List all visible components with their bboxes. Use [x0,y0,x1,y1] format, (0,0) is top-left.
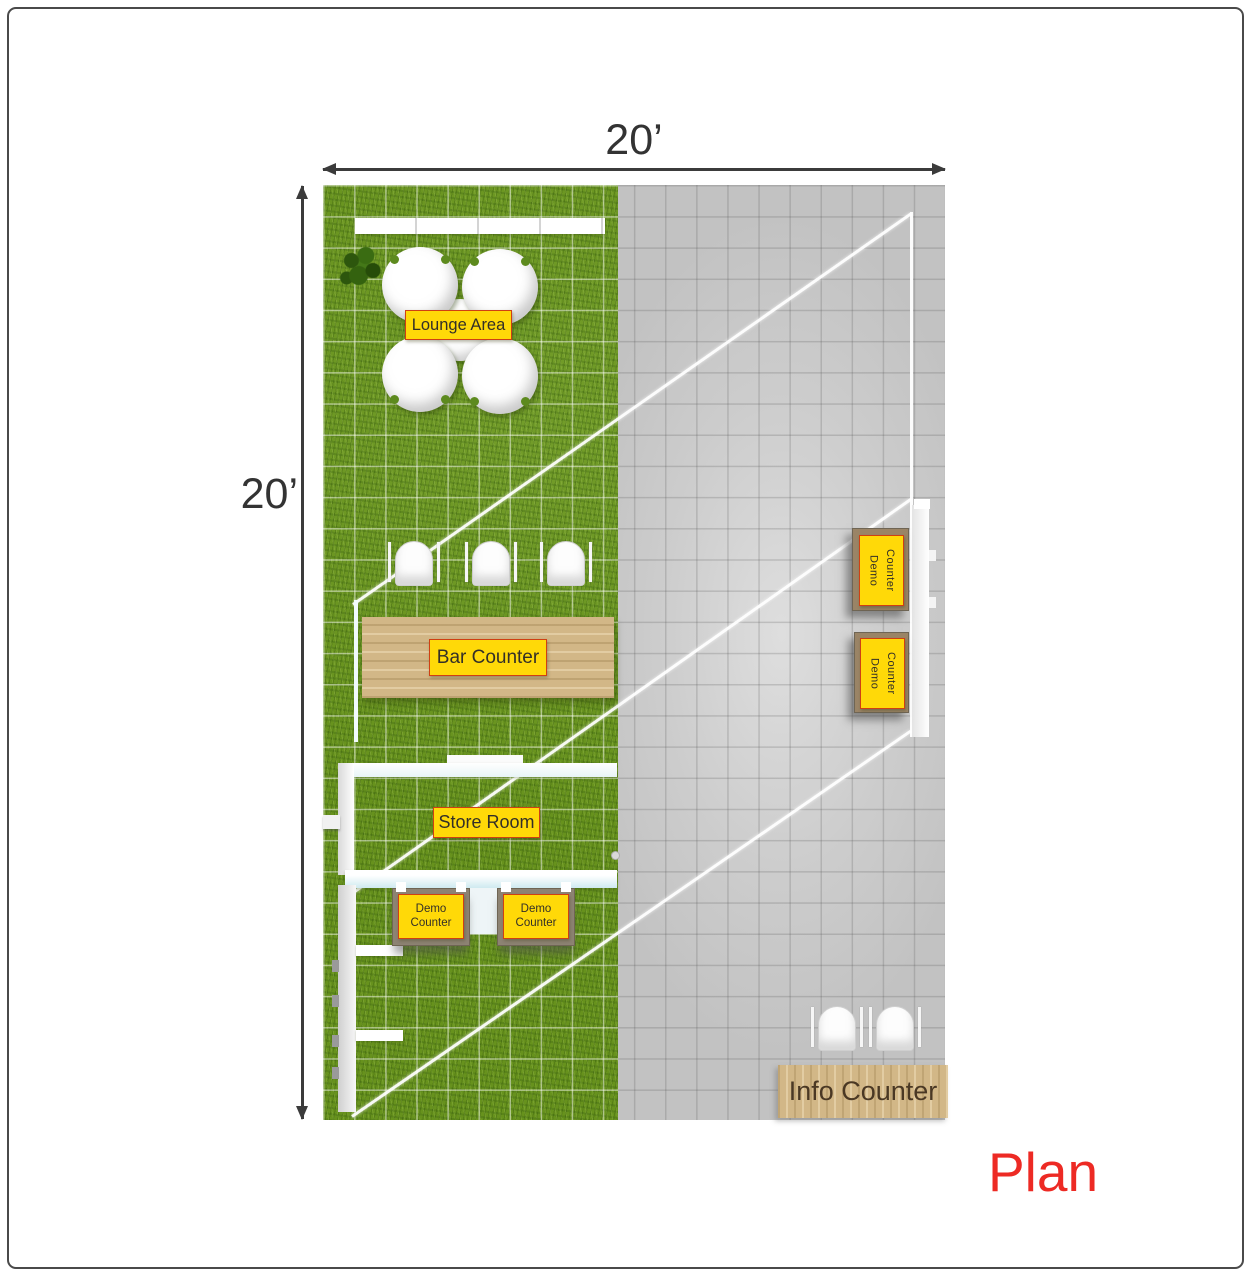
store-room-label: Store Room [433,807,540,838]
wall-bracket [332,1035,339,1047]
counter-post [456,882,466,892]
demo-counter: Demo Counter [854,632,909,713]
bar-counter-label: Bar Counter [429,639,547,676]
lounge-chair [462,338,538,414]
plant-icon [337,243,385,293]
info-chair [876,1006,914,1051]
demo-counter-label: Demo Counter [859,535,904,606]
top-shelf-unit [355,218,605,234]
wall-bracket [929,550,936,561]
width-dimension-arrow [323,168,945,171]
store-room-top-wall [345,763,617,777]
wall-bracket [332,960,339,972]
demo-counter: Demo Counter [497,888,575,946]
boundary-marker [611,851,620,860]
demo-counter: Demo Counter [852,528,909,611]
wall-shelf [356,945,403,956]
demo-counter-gap-panel [470,888,497,934]
right-demo-backwall-cap [914,499,930,509]
plan-caption: Plan [988,1140,1098,1204]
info-chair [818,1006,856,1051]
width-dimension-label: 20’ [323,116,945,165]
bar-stool [395,541,433,586]
bar-counter: Bar Counter [362,617,614,698]
demo-counter-label: Demo Counter [860,638,905,709]
store-room-left-wall [338,763,354,875]
booth-plan: Lounge Area Bar Counter Store Room Demo … [323,185,945,1120]
counter-post [561,882,571,892]
bar-stool [547,541,585,586]
counter-post [396,882,406,892]
info-counter: Info Counter [778,1065,948,1118]
left-side-wall [338,885,356,1112]
store-room-wall-stub [323,815,340,829]
wall-shelf [356,1030,403,1041]
wall-bracket [332,995,339,1007]
demo-counter: Demo Counter [392,888,470,946]
lounge-area-label: Lounge Area [405,310,512,340]
floor-plan-sheet: 20’ 20’ [0,0,1251,1276]
truss-left-post [354,600,358,742]
height-dimension-arrow [301,186,304,1119]
lounge-chair [382,336,458,412]
wall-bracket [929,597,936,608]
height-dimension-label: 20’ [222,470,298,519]
demo-counter-label: Demo Counter [503,894,569,939]
demo-counter-label: Demo Counter [398,894,464,939]
bar-stool [472,541,510,586]
store-room-glass-wall [345,870,617,888]
wall-bracket [332,1067,339,1079]
counter-post [501,882,511,892]
right-demo-backwall [912,505,929,737]
